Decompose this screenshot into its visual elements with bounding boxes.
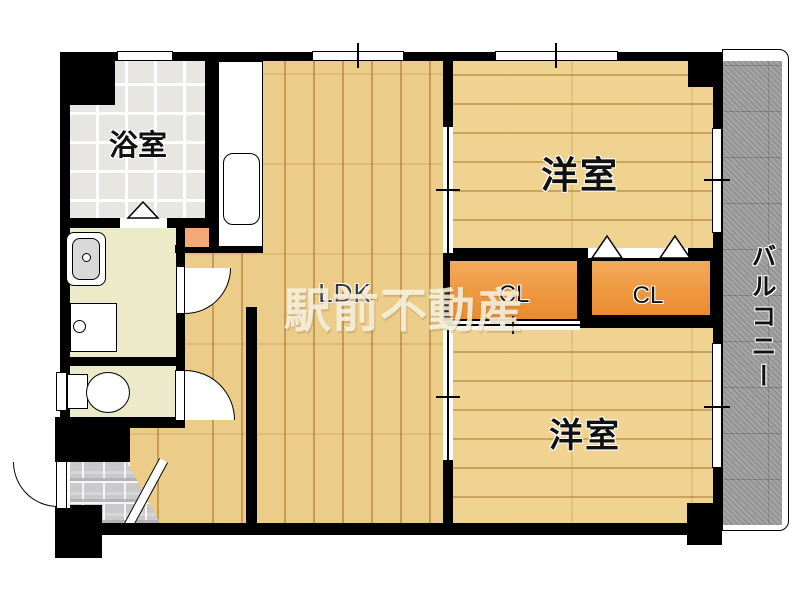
pillar-top-right: [688, 61, 713, 87]
folding-door-triangle-2: [658, 234, 692, 260]
wall-washroom-right-a: [176, 228, 185, 268]
wall-closet-bottom: [580, 318, 722, 328]
window-bathroom-top: [117, 51, 173, 61]
window-tick-upper-top: [555, 43, 557, 68]
sliding-tick-lower: [436, 396, 460, 398]
wall-closet-mid: [580, 253, 589, 323]
wall-toilet-bottom: [55, 417, 185, 428]
sliding-tick-upper: [436, 189, 460, 191]
floor-plan: バルコニー: [0, 0, 800, 600]
toilet-paper-holder: [56, 372, 67, 411]
watermark-text: 駅前不動産: [284, 272, 524, 341]
vanity-drain: [82, 253, 91, 262]
kitchen-sink: [223, 153, 260, 225]
folding-door-triangle-1: [590, 234, 624, 260]
upper-room-label: 洋室: [510, 145, 650, 199]
wall-bottom: [102, 523, 722, 535]
wall-wash-toilet-divider: [62, 357, 180, 366]
bathroom-label: 浴室: [98, 122, 178, 164]
entrance-door-leaf: [56, 461, 67, 509]
water-heater-box: [185, 228, 209, 247]
washer-drain: [73, 320, 86, 333]
pillar-bottom-left: [55, 505, 102, 558]
balcony-label: バルコニー: [724, 243, 780, 443]
window-tick-ldk: [357, 43, 359, 68]
entrance-door-swing: [13, 462, 58, 507]
pillar-top-left: [60, 52, 115, 105]
toilet-door-leaf: [175, 370, 185, 421]
sliding-line-lower: [447, 327, 449, 460]
wall-entrance-block: [55, 428, 130, 462]
bathroom-door-triangle: [126, 201, 160, 220]
wall-bathroom-right: [205, 61, 218, 252]
toilet-tank: [67, 374, 88, 409]
wall-hall-ldk: [246, 307, 257, 523]
lower-room-label: 洋室: [518, 408, 652, 457]
window-tick-upper-right: [704, 179, 730, 181]
toilet-bowl: [86, 372, 130, 413]
wall-ldk-rooms-a: [443, 61, 453, 127]
window-tick-lower-right: [704, 406, 730, 408]
wall-ldk-rooms-c: [443, 460, 453, 523]
closet-right-label: CL: [618, 282, 678, 310]
washroom-door-leaf: [176, 266, 185, 314]
